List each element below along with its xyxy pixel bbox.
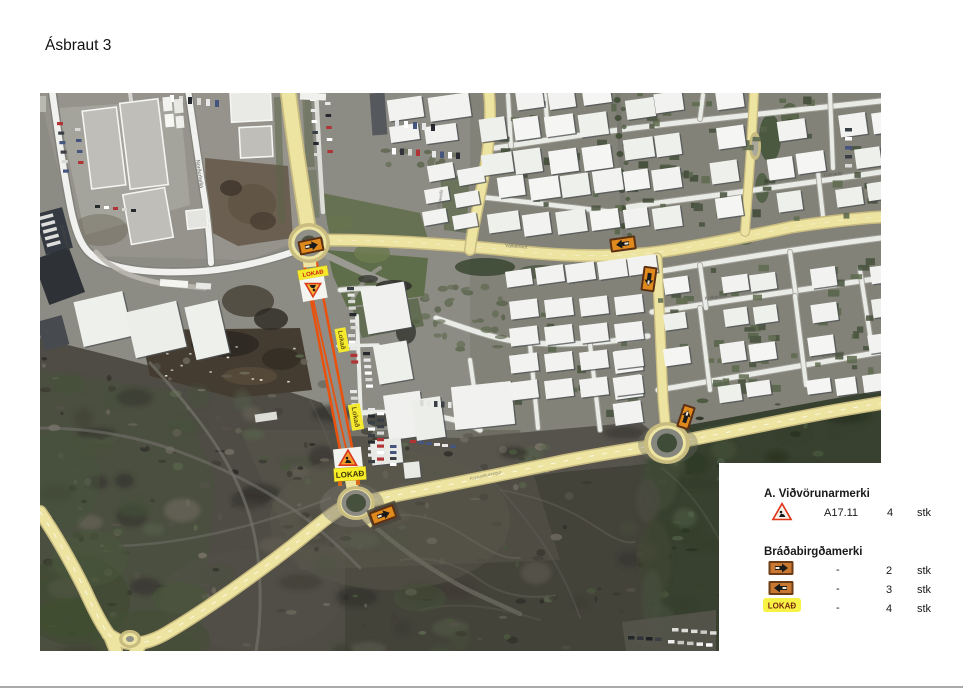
svg-text:stk: stk (917, 507, 932, 519)
svg-text:-: - (836, 602, 840, 614)
svg-text:stk: stk (917, 603, 932, 615)
svg-text:A17.11: A17.11 (824, 507, 858, 519)
svg-text:stk: stk (917, 584, 932, 596)
svg-text:-: - (836, 564, 840, 576)
svg-text:2: 2 (886, 565, 892, 577)
svg-text:A. Viðvörunarmerki: A. Viðvörunarmerki (764, 488, 870, 500)
svg-text:Bráðabirgðamerki: Bráðabirgðamerki (764, 546, 862, 558)
svg-text:-: - (836, 583, 840, 595)
svg-text:stk: stk (917, 565, 932, 577)
svg-text:4: 4 (886, 603, 892, 615)
svg-text:LOKAÐ: LOKAÐ (768, 602, 797, 611)
svg-text:3: 3 (886, 584, 892, 596)
svg-text:4: 4 (887, 507, 893, 519)
